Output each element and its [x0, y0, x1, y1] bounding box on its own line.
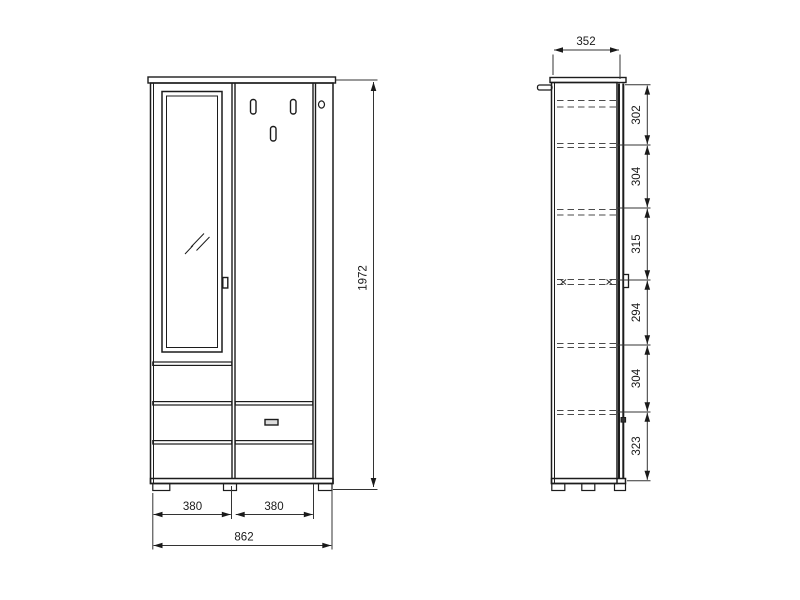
dim-label-depth: 352: [576, 36, 595, 48]
side-panel-hook-icon: [319, 101, 325, 108]
dim-label-segment-5: 304: [631, 368, 643, 388]
dim-label-segment-2: 304: [631, 166, 643, 186]
coat-hook-icon: [291, 100, 297, 115]
side-bottom-band: [552, 479, 626, 484]
drawer-handle-icon: [265, 420, 278, 426]
dim-label-height: 1972: [358, 265, 370, 291]
dim-label-segment-6: 323: [631, 436, 643, 455]
coat-hook-icon: [251, 100, 257, 115]
side-view: [538, 78, 629, 491]
side-foot: [552, 484, 565, 491]
shelf-fixing-marks: [561, 280, 613, 285]
front-view: [148, 77, 336, 491]
drawing-page: 1972 380 380 862 352 302 304: [0, 0, 800, 600]
left-column-band: [153, 441, 232, 444]
dim-label-total-width: 862: [234, 532, 253, 544]
front-cabinet-body: [151, 83, 334, 484]
front-top-panel: [148, 77, 336, 83]
mirror-reflection-icon: [185, 234, 210, 255]
hidden-shelf-lines: [557, 101, 616, 415]
coat-hook-icon: [271, 127, 277, 142]
mirror-door-frame: [162, 92, 222, 353]
dim-label-segment-3: 315: [631, 234, 643, 253]
dim-label-right-width: 380: [264, 501, 283, 513]
side-hinge-mark: [621, 418, 626, 423]
door-handle-icon: [223, 278, 228, 289]
side-door-handle-icon: [624, 275, 629, 288]
left-column-band: [153, 402, 232, 405]
front-dimension-labels: 1972 380 380 862: [183, 265, 370, 543]
technical-drawing-canvas: 1972 380 380 862 352 302 304: [0, 0, 800, 600]
front-foot: [224, 484, 237, 491]
side-dimension-labels: 352 302 304 315 294 304 323: [576, 36, 643, 456]
side-body: [552, 83, 618, 484]
side-foot: [615, 484, 626, 491]
front-foot: [153, 484, 170, 491]
dim-label-left-width: 380: [183, 501, 202, 513]
front-foot: [319, 484, 333, 491]
front-bottom-band: [151, 479, 334, 484]
front-center-divider: [232, 83, 235, 479]
left-column-band: [153, 362, 232, 365]
side-foot: [582, 484, 595, 491]
front-right-panel-divider: [313, 83, 316, 479]
side-wall-hook-icon: [538, 85, 553, 90]
mirror-glass: [167, 96, 218, 348]
dim-label-segment-1: 302: [631, 105, 643, 124]
dim-label-segment-4: 294: [631, 302, 643, 322]
right-column-band: [235, 402, 313, 405]
right-column-band: [235, 441, 313, 444]
